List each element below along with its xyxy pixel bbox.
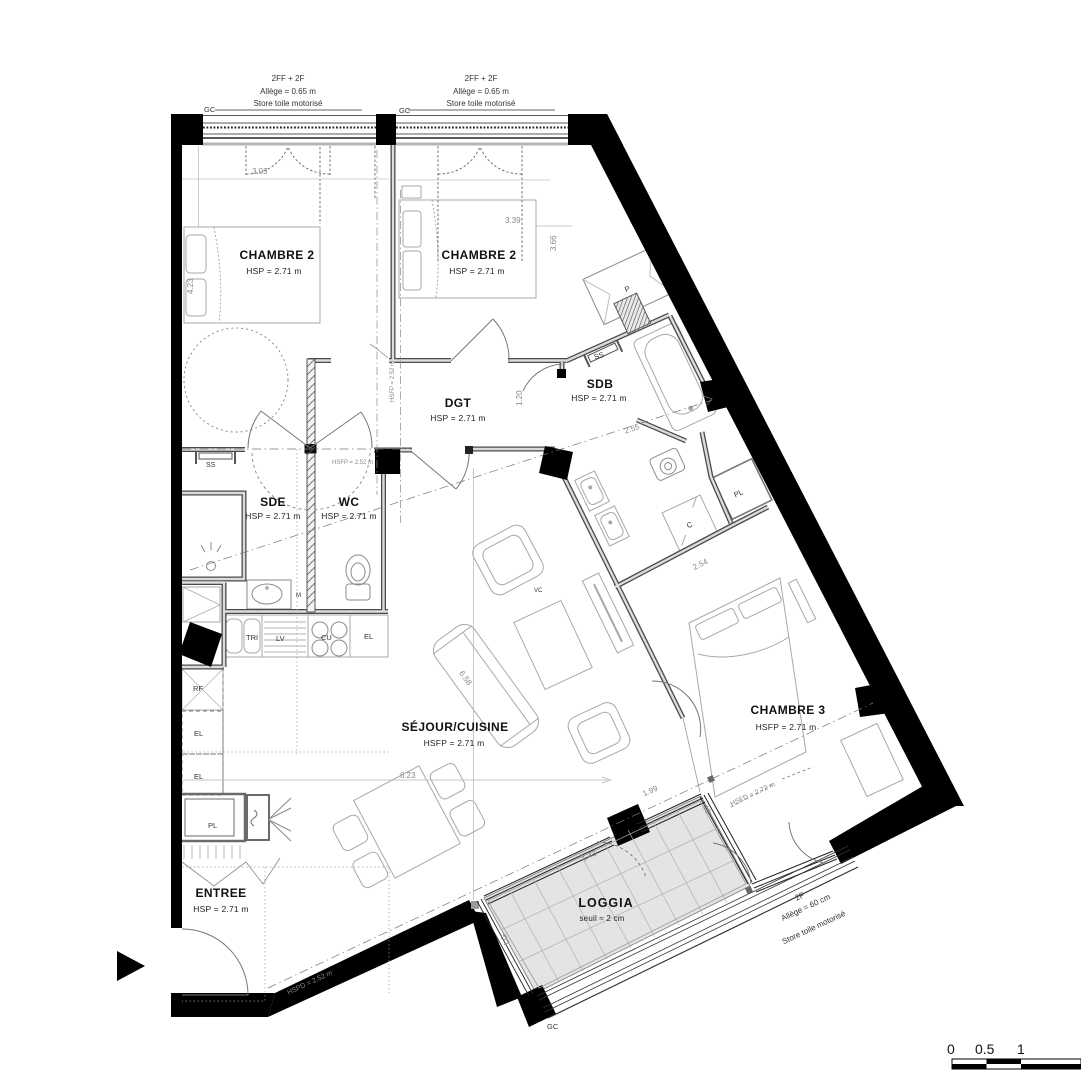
svg-text:1: 1 [1017,1041,1025,1057]
svg-text:Store toile motorisé: Store toile motorisé [254,99,323,108]
svg-text:VC: VC [534,588,543,594]
svg-text:LOGGIA: LOGGIA [578,896,633,910]
svg-text:SDE: SDE [260,495,286,509]
svg-text:seuil ≈ 2 cm: seuil ≈ 2 cm [579,914,624,923]
svg-text:GC: GC [547,1022,559,1031]
svg-text:M: M [296,593,301,599]
svg-text:HSFP = 2.52 m: HSFP = 2.52 m [390,361,396,402]
svg-text:Store toile motorisé: Store toile motorisé [447,99,516,108]
svg-text:2FF + 2F: 2FF + 2F [272,74,305,83]
svg-text:HSFP = 2.71 m: HSFP = 2.71 m [756,722,817,732]
svg-text:CHAMBRE 2: CHAMBRE 2 [442,248,517,262]
svg-text:CHAMBRE 2: CHAMBRE 2 [240,248,315,262]
svg-text:HSP = 2.71 m: HSP = 2.71 m [449,266,504,276]
svg-text:GC: GC [399,106,411,115]
svg-text:HSP = 2.71 m: HSP = 2.71 m [571,393,626,403]
svg-text:HSFP = 2.71 m: HSFP = 2.71 m [424,738,485,748]
svg-text:LV: LV [276,634,285,643]
svg-text:2FF + 2F: 2FF + 2F [465,74,498,83]
svg-text:3.66: 3.66 [549,235,558,251]
svg-text:GC: GC [204,105,216,114]
svg-text:CU: CU [321,633,332,642]
svg-text:CHAMBRE 3: CHAMBRE 3 [751,703,826,717]
svg-text:HSP = 2.71 m: HSP = 2.71 m [321,511,376,521]
svg-text:HSP = 2.71 m: HSP = 2.71 m [430,413,485,423]
svg-text:EL: EL [194,729,203,738]
svg-text:0.5: 0.5 [975,1041,995,1057]
svg-text:EL: EL [194,772,203,781]
svg-text:EL: EL [364,632,373,641]
svg-text:WC: WC [339,495,360,509]
svg-text:3.03: 3.03 [252,167,268,176]
svg-text:HSP = 2.71 m: HSP = 2.71 m [245,511,300,521]
svg-text:0: 0 [947,1041,955,1057]
svg-text:PL: PL [208,821,217,830]
svg-text:6.23: 6.23 [400,771,416,780]
svg-text:Allège = 0.65 m: Allège = 0.65 m [453,87,509,96]
svg-text:ENTREE: ENTREE [195,886,246,900]
svg-text:SDB: SDB [587,377,614,391]
svg-text:1.20: 1.20 [515,390,524,406]
svg-text:RF: RF [193,684,203,693]
svg-text:3.39: 3.39 [505,216,521,225]
svg-text:SS: SS [206,462,216,469]
svg-text:HSP = 2.71 m: HSP = 2.71 m [193,904,248,914]
svg-text:4.23: 4.23 [186,278,195,294]
svg-text:HSP = 2.71 m: HSP = 2.71 m [246,266,301,276]
svg-text:HSFP = 2.52 m: HSFP = 2.52 m [332,460,373,466]
svg-text:Allège = 0.65 m: Allège = 0.65 m [260,87,316,96]
svg-text:SÉJOUR/CUISINE: SÉJOUR/CUISINE [402,719,509,734]
svg-text:TRI: TRI [246,633,258,642]
svg-text:DGT: DGT [445,396,472,410]
